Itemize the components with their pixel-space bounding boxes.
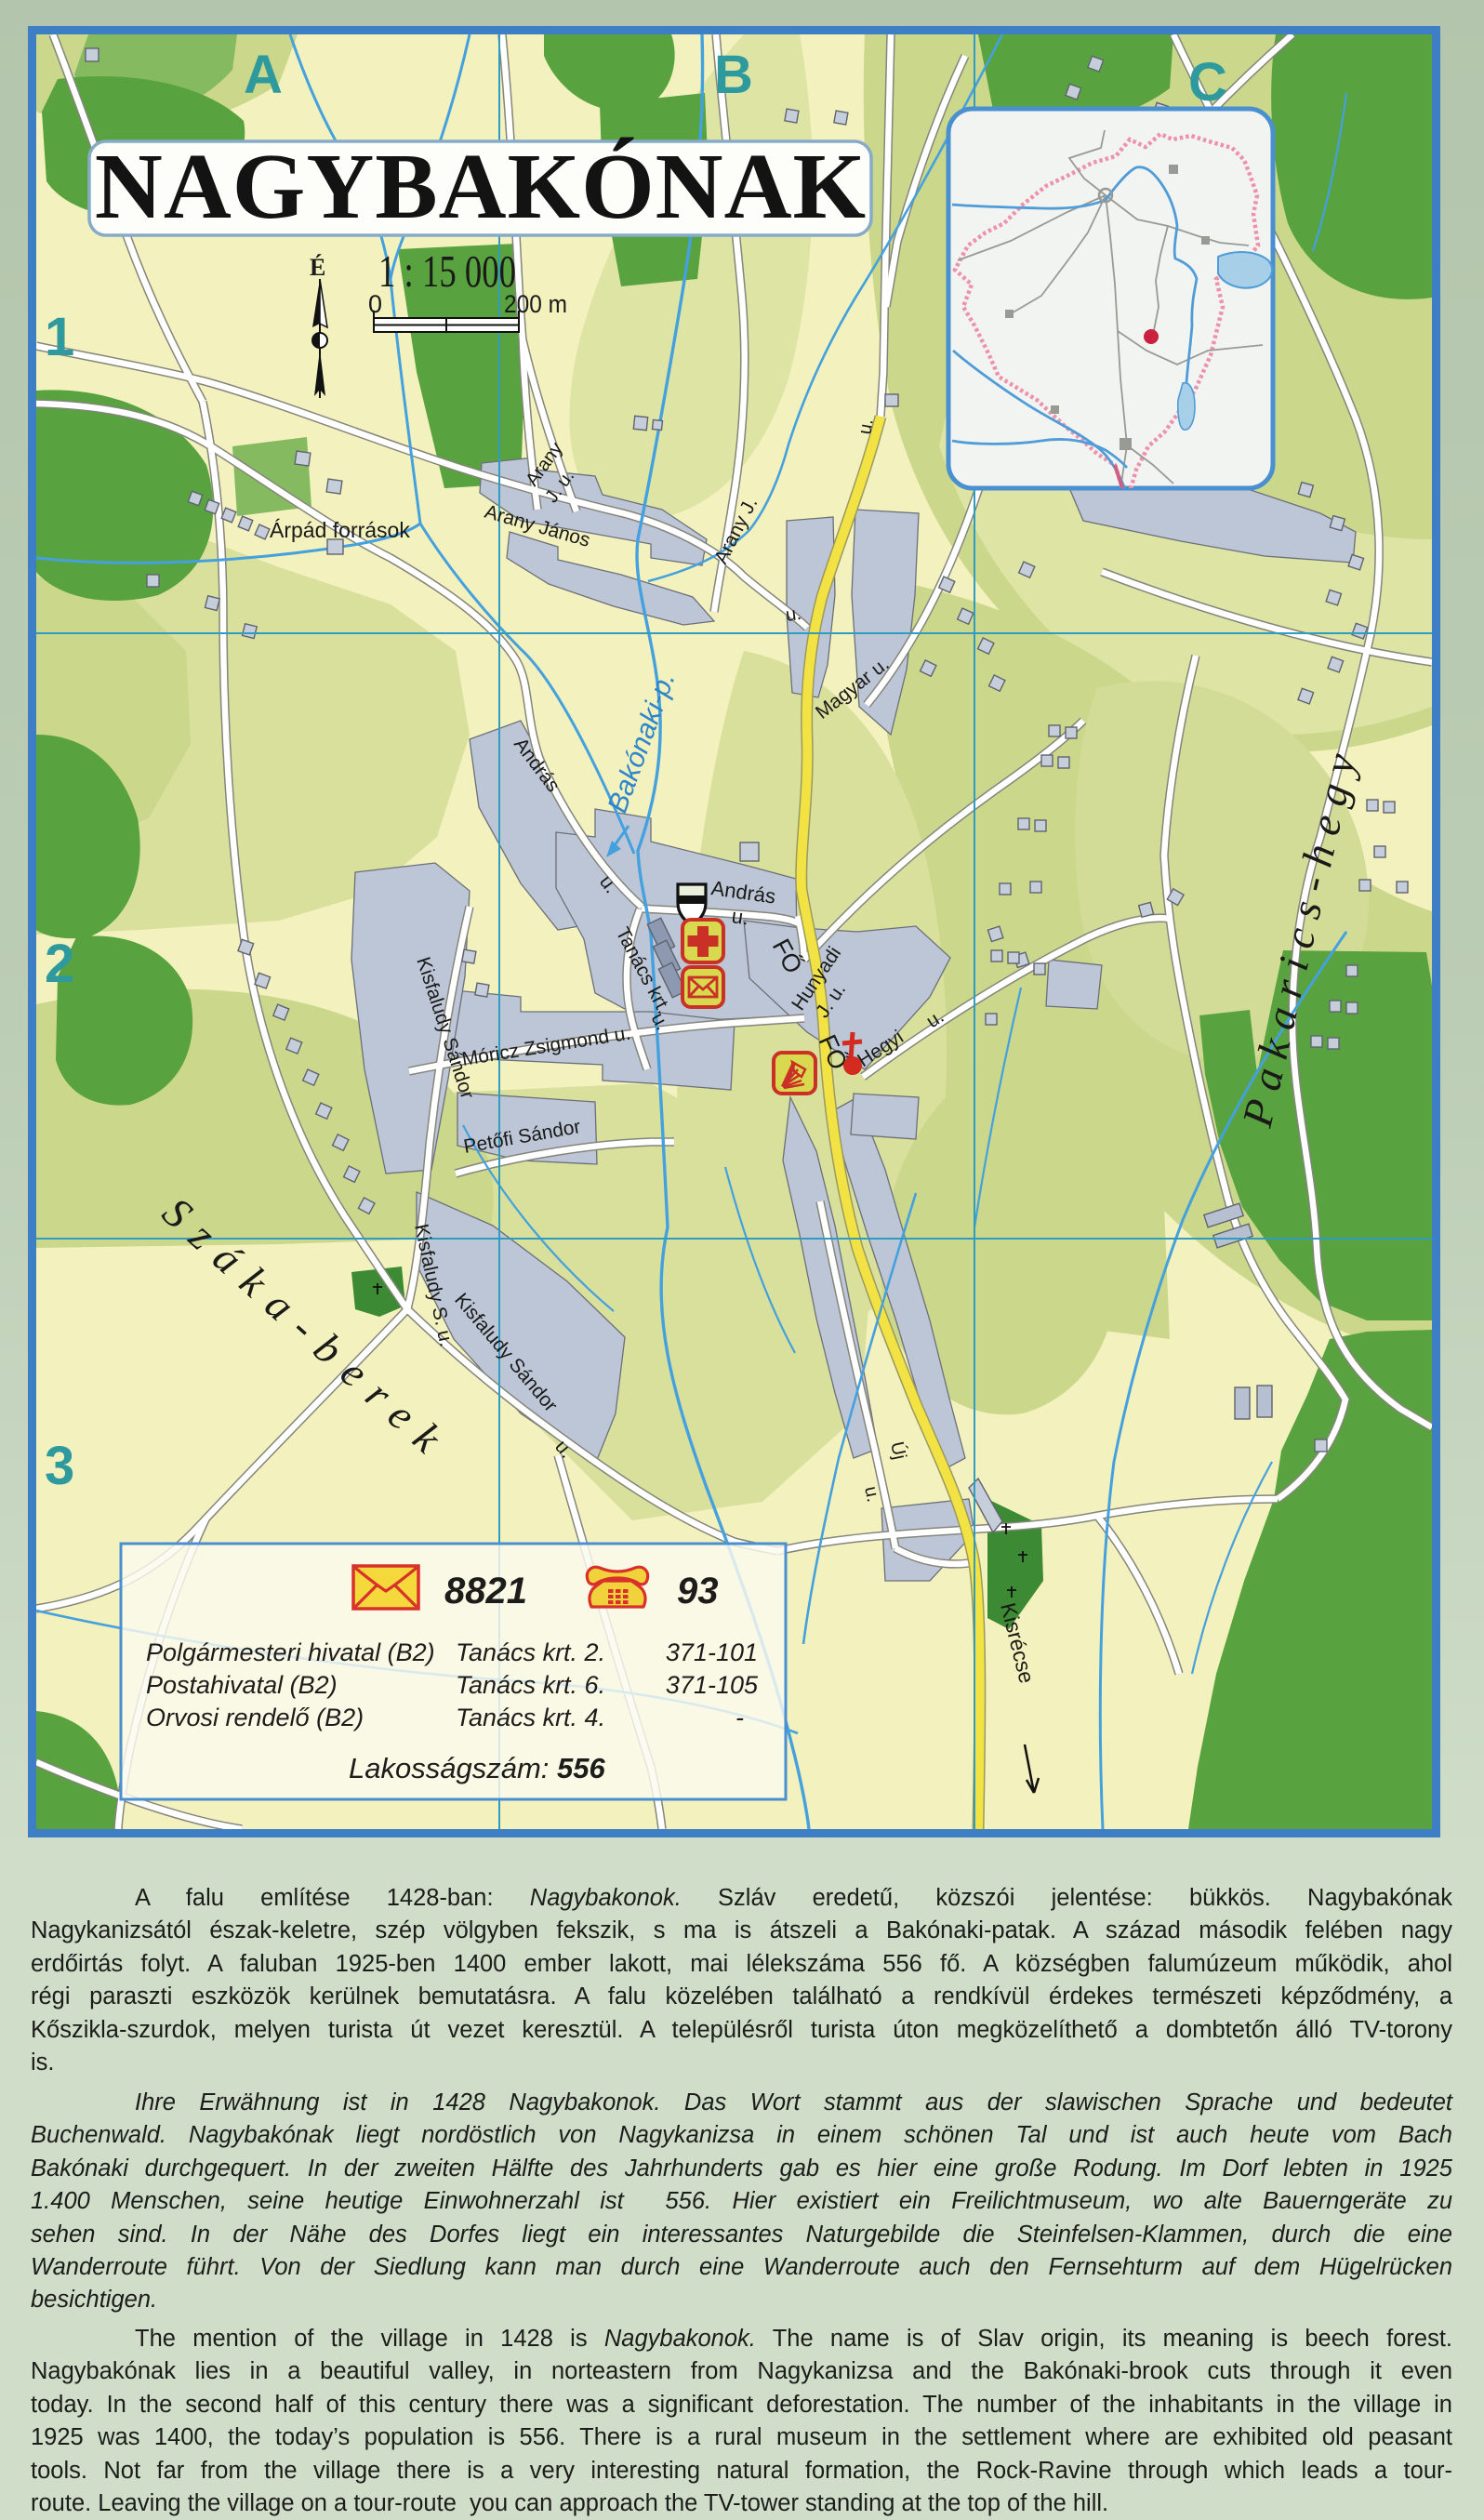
svg-text:200 m: 200 m xyxy=(504,290,567,318)
svg-text:Tanács krt. 6.: Tanács krt. 6. xyxy=(456,1671,605,1699)
svg-text:Tanács krt. 2.: Tanács krt. 2. xyxy=(456,1638,605,1666)
svg-text:u.: u. xyxy=(785,603,803,626)
svg-text:3: 3 xyxy=(45,1436,74,1496)
svg-text:A: A xyxy=(244,45,283,105)
svg-text:Polgármesteri hivatal (B2): Polgármesteri hivatal (B2) xyxy=(146,1638,435,1666)
svg-text:Lakosságszám: 556: Lakosságszám: 556 xyxy=(349,1752,605,1784)
svg-text:371-105: 371-105 xyxy=(666,1671,759,1699)
svg-text:1 : 15 000: 1 : 15 000 xyxy=(378,245,516,297)
svg-text:u.: u. xyxy=(730,904,750,929)
svg-text:Postahivatal (B2): Postahivatal (B2) xyxy=(146,1671,338,1699)
svg-text:É: É xyxy=(310,254,325,281)
svg-text:NAGYBAKÓNAK: NAGYBAKÓNAK xyxy=(95,134,867,238)
svg-text:Tanács krt. 4.: Tanács krt. 4. xyxy=(456,1704,605,1731)
svg-text:2: 2 xyxy=(45,934,74,994)
svg-text:-: - xyxy=(735,1704,744,1731)
svg-text:0: 0 xyxy=(368,290,382,318)
svg-text:B: B xyxy=(714,45,753,105)
svg-text:1: 1 xyxy=(45,307,74,367)
svg-text:8821: 8821 xyxy=(444,1571,527,1611)
svg-text:C: C xyxy=(1188,52,1227,113)
svg-text:371-101: 371-101 xyxy=(666,1638,758,1666)
svg-text:Árpád források: Árpád források xyxy=(270,518,410,542)
svg-text:93: 93 xyxy=(677,1571,719,1611)
svg-text:Orvosi rendelő (B2): Orvosi rendelő (B2) xyxy=(146,1704,364,1731)
